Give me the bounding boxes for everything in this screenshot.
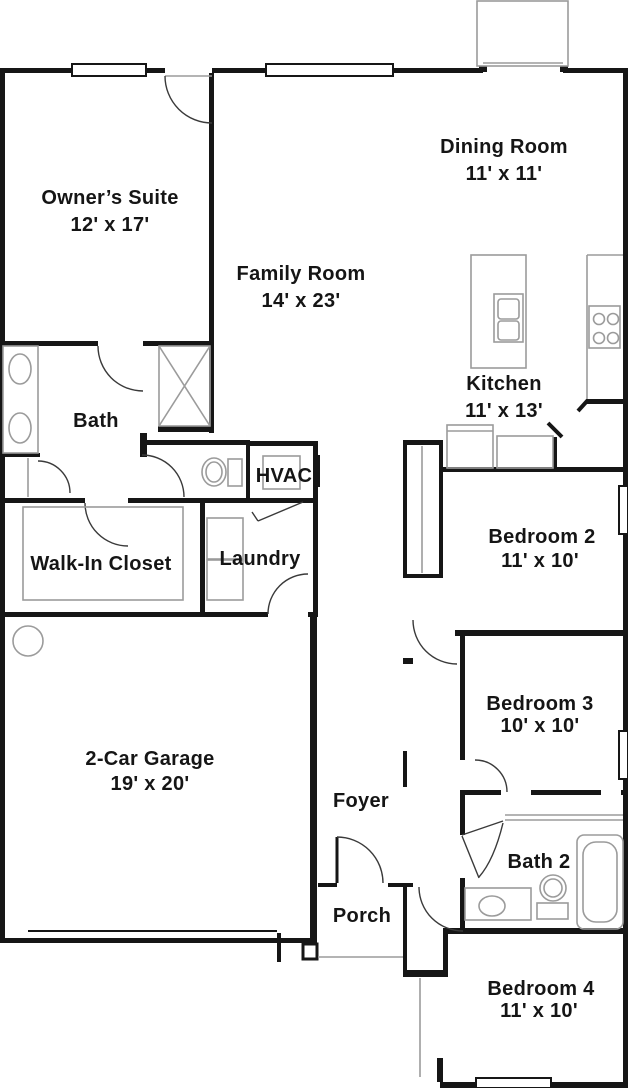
wall-segment — [460, 632, 465, 760]
wall-segment — [403, 751, 407, 787]
refrigerator — [447, 425, 493, 468]
kitchen-counter — [587, 255, 623, 399]
toilet-tank — [537, 903, 568, 919]
bath2-door-leaf — [462, 821, 503, 835]
wall-segment — [563, 68, 628, 73]
wall-segment — [403, 440, 443, 445]
wall-segment — [437, 1058, 443, 1082]
window — [266, 64, 393, 76]
door-swing — [98, 346, 143, 391]
kitchen-island — [471, 255, 526, 368]
room-label-bedroom-4: Bedroom 4 — [487, 978, 595, 1000]
wall-segment — [318, 883, 337, 887]
room-label-walk-in-closet: Walk-In Closet — [30, 553, 171, 575]
wall-segment — [403, 574, 443, 578]
bath2-door-leaf — [462, 836, 479, 878]
wall-segment — [250, 441, 313, 446]
wall-segment — [0, 612, 268, 617]
room-label-porch: Porch — [333, 905, 391, 927]
wall-segment — [310, 615, 317, 943]
wall-segment — [403, 887, 407, 970]
water-heater — [13, 626, 43, 656]
door-swing — [165, 76, 212, 123]
door-swing — [85, 503, 128, 546]
room-dims-owners-suite: 12' x 17' — [71, 214, 150, 236]
sink — [479, 896, 505, 916]
dining-bay — [477, 1, 568, 66]
burner — [594, 314, 605, 325]
wall-segment — [0, 938, 317, 943]
hvac-door — [252, 512, 258, 521]
wall-segment — [531, 790, 601, 795]
wall-segment — [0, 498, 85, 503]
front-door-swing — [337, 837, 383, 883]
wall-segment — [246, 445, 250, 498]
wall-segment — [128, 498, 318, 503]
room-label-hvac: HVAC — [256, 465, 312, 487]
stove — [589, 306, 620, 348]
shower — [159, 346, 210, 426]
window — [476, 1078, 551, 1088]
room-label-bath-2: Bath 2 — [508, 851, 571, 873]
sink-basin — [498, 321, 519, 340]
door-swing — [419, 887, 463, 931]
wall-segment — [439, 445, 443, 578]
angled-wall-stub — [548, 423, 562, 437]
cooktop — [589, 306, 620, 348]
owners-bath-vanity — [3, 346, 38, 453]
room-dims-garage: 19' x 20' — [111, 773, 190, 795]
door-swing — [475, 760, 507, 792]
room-label-foyer: Foyer — [333, 790, 389, 812]
toilet-tank — [228, 459, 242, 486]
room-dims-bedroom-2: 11' x 10' — [501, 550, 579, 572]
door-swing — [142, 455, 184, 497]
wall-segment — [587, 399, 623, 404]
room-label-bedroom-3: Bedroom 3 — [486, 693, 593, 715]
hvac-vent — [313, 455, 320, 487]
floor-plan-drawing: Owner’s Suite 12' x 17' Dining Room 11' … — [0, 0, 628, 1088]
door-swing — [38, 461, 70, 493]
room-dims-kitchen: 11' x 13' — [465, 400, 543, 422]
wall-segment — [443, 928, 448, 977]
burner — [594, 333, 605, 344]
burner — [608, 333, 619, 344]
window — [619, 486, 628, 534]
wall-segment — [158, 426, 213, 432]
room-label-bath: Bath — [73, 410, 119, 432]
wall-segment — [0, 68, 5, 943]
room-dims-bedroom-3: 10' x 10' — [501, 715, 580, 737]
bath2-door-swing — [479, 823, 503, 877]
wall-segment — [460, 790, 501, 795]
room-label-kitchen: Kitchen — [466, 373, 541, 395]
wall-segment — [455, 630, 628, 636]
door-swing — [413, 620, 457, 664]
room-dims-family-room: 14' x 23' — [262, 290, 341, 312]
window — [72, 64, 146, 76]
room-label-family-room: Family Room — [237, 263, 366, 285]
wall-segment — [623, 68, 628, 1088]
windows — [72, 64, 628, 1088]
room-label-garage: 2-Car Garage — [85, 748, 214, 770]
wall-segment — [200, 503, 205, 617]
owners-toilet — [202, 458, 242, 486]
wall-segment — [621, 790, 628, 795]
room-dims-dining-room: 11' x 11' — [466, 163, 543, 185]
burner — [608, 314, 619, 325]
toilet-bowl-inner — [206, 462, 222, 482]
porch-step — [303, 944, 317, 959]
angled-wall-stub — [578, 400, 588, 411]
wall-segment — [403, 970, 443, 977]
room-dims-bedroom-4: 11' x 10' — [500, 1000, 578, 1022]
window — [619, 731, 628, 779]
wall-segment — [403, 658, 413, 664]
room-label-dining-room: Dining Room — [440, 136, 568, 158]
room-label-bedroom-2: Bedroom 2 — [488, 526, 595, 548]
room-label-owners-suite: Owner’s Suite — [41, 187, 178, 209]
wall-segment — [460, 792, 465, 835]
sink-basin — [498, 299, 519, 319]
wall-segment — [388, 883, 413, 887]
wall-segment — [143, 440, 250, 445]
floor-plan: Owner’s Suite 12' x 17' Dining Room 11' … — [0, 0, 628, 1088]
bathtub-inner — [583, 842, 617, 922]
vanity-counter — [3, 346, 38, 453]
toilet-bowl-inner — [544, 879, 562, 897]
door-swing — [268, 574, 308, 614]
room-label-laundry: Laundry — [220, 548, 302, 570]
wall-segment — [403, 440, 407, 578]
hvac-door — [258, 502, 303, 521]
wall-segment — [277, 933, 281, 962]
pantry-cabinet — [497, 436, 553, 468]
bay-outline — [477, 1, 568, 66]
